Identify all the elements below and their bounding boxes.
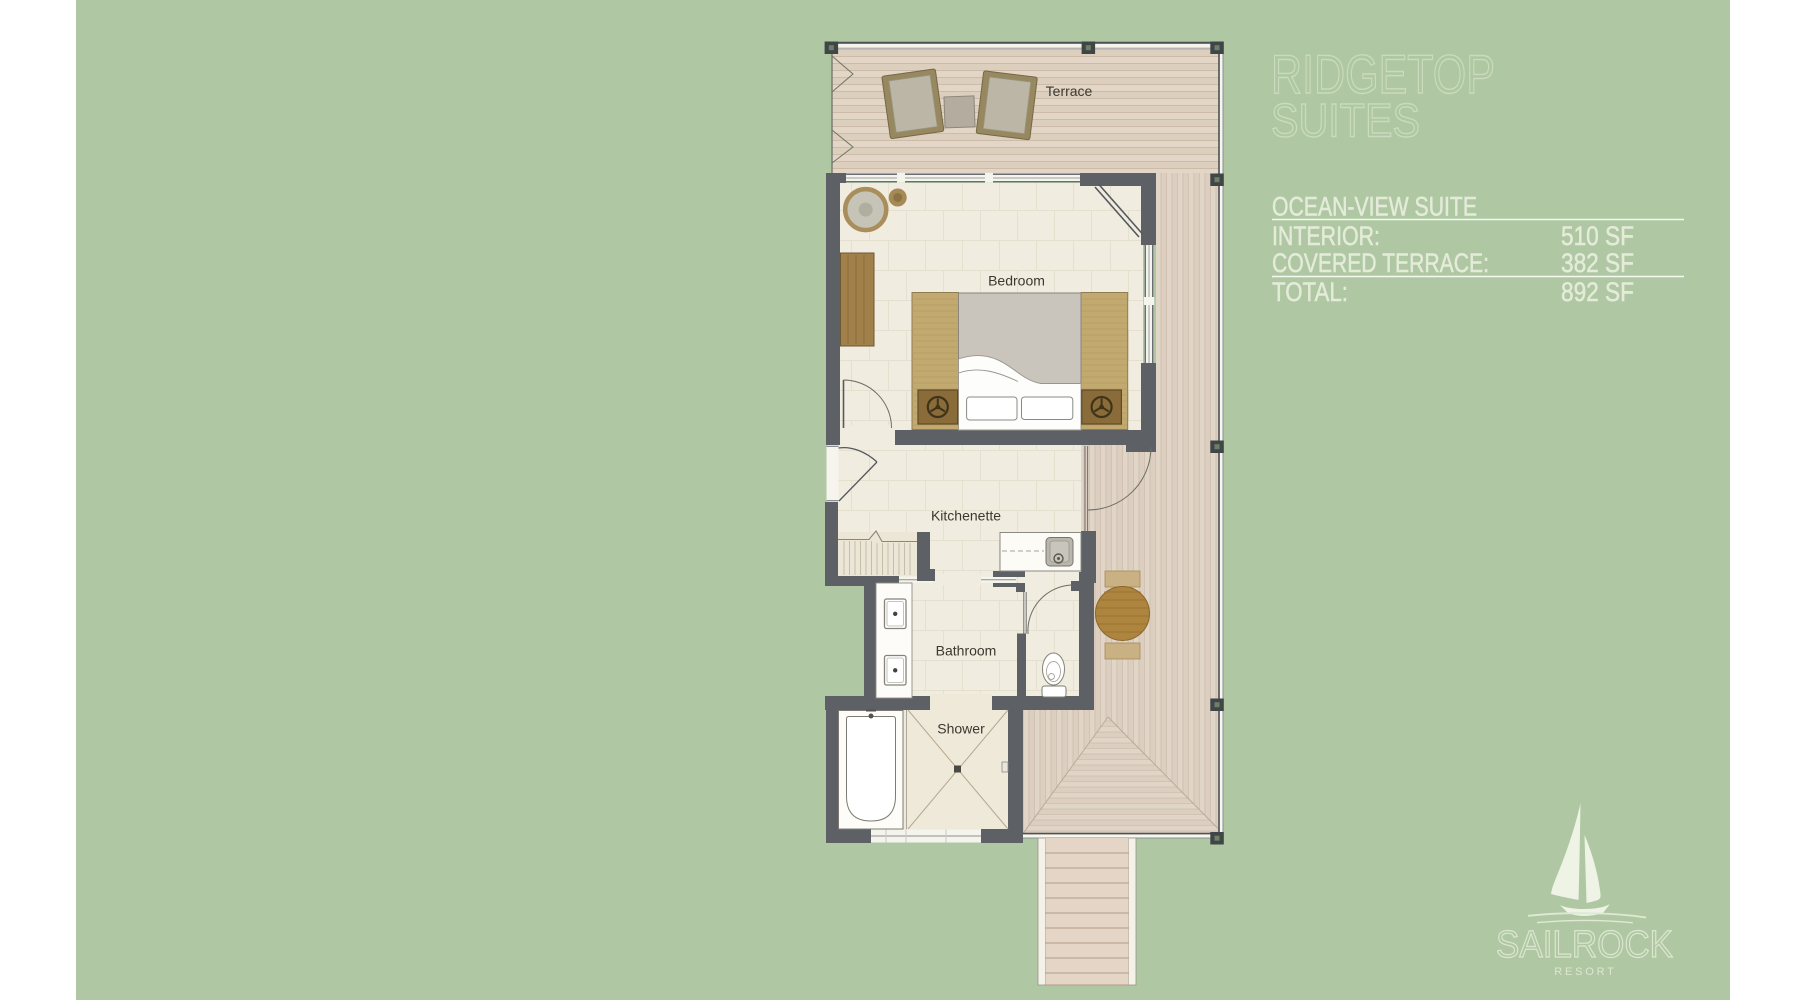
svg-text:SUITES: SUITES — [1271, 94, 1420, 147]
svg-text:SAILROCK: SAILROCK — [1496, 924, 1673, 966]
svg-text:Terrace: Terrace — [1046, 83, 1093, 99]
svg-text:Kitchenette: Kitchenette — [931, 508, 1001, 524]
svg-text:Bathroom: Bathroom — [936, 643, 997, 659]
svg-text:510 SF: 510 SF — [1561, 221, 1634, 251]
svg-text:TOTAL:: TOTAL: — [1272, 277, 1348, 307]
svg-text:382 SF: 382 SF — [1561, 248, 1634, 278]
svg-text:RESORT: RESORT — [1554, 966, 1616, 978]
svg-text:892 SF: 892 SF — [1561, 277, 1634, 307]
svg-text:COVERED TERRACE:: COVERED TERRACE: — [1272, 248, 1489, 278]
svg-text:INTERIOR:: INTERIOR: — [1272, 221, 1380, 251]
svg-text:Bedroom: Bedroom — [988, 273, 1045, 289]
svg-text:OCEAN-VIEW SUITE: OCEAN-VIEW SUITE — [1272, 192, 1477, 222]
svg-text:Shower: Shower — [937, 721, 985, 737]
